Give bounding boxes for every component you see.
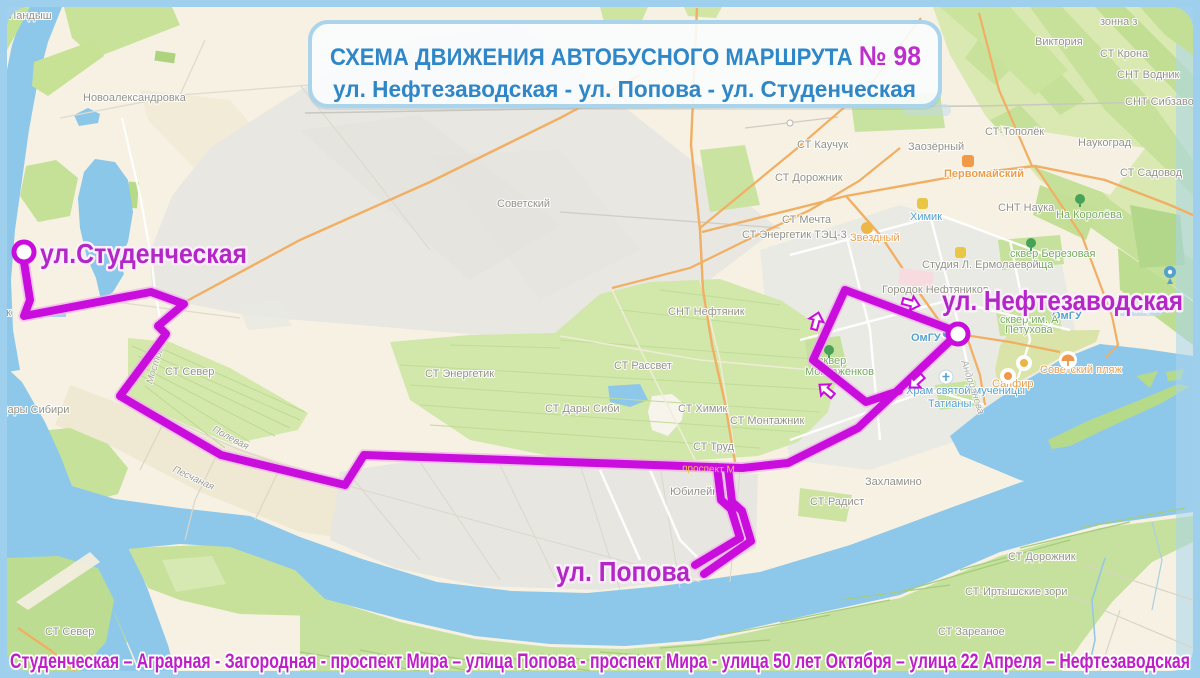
svg-text:проспект М: проспект М — [682, 463, 735, 476]
svg-text:ул.Студенческая: ул.Студенческая — [40, 238, 247, 269]
svg-text:ул. Попова: ул. Попова — [556, 556, 690, 587]
svg-text:ул. Нефтезаводская - ул. Попов: ул. Нефтезаводская - ул. Попова - ул. Ст… — [333, 76, 916, 102]
svg-text:СХЕМА ДВИЖЕНИЯ АВТОБУСНОГО МАР: СХЕМА ДВИЖЕНИЯ АВТОБУСНОГО МАРШРУТА № 98 — [330, 41, 921, 71]
svg-text:ул. Нефтезаводская: ул. Нефтезаводская — [942, 285, 1183, 316]
svg-text:Студенческая – Аграрная - Заго: Студенческая – Аграрная - Загородная - п… — [10, 650, 1190, 673]
